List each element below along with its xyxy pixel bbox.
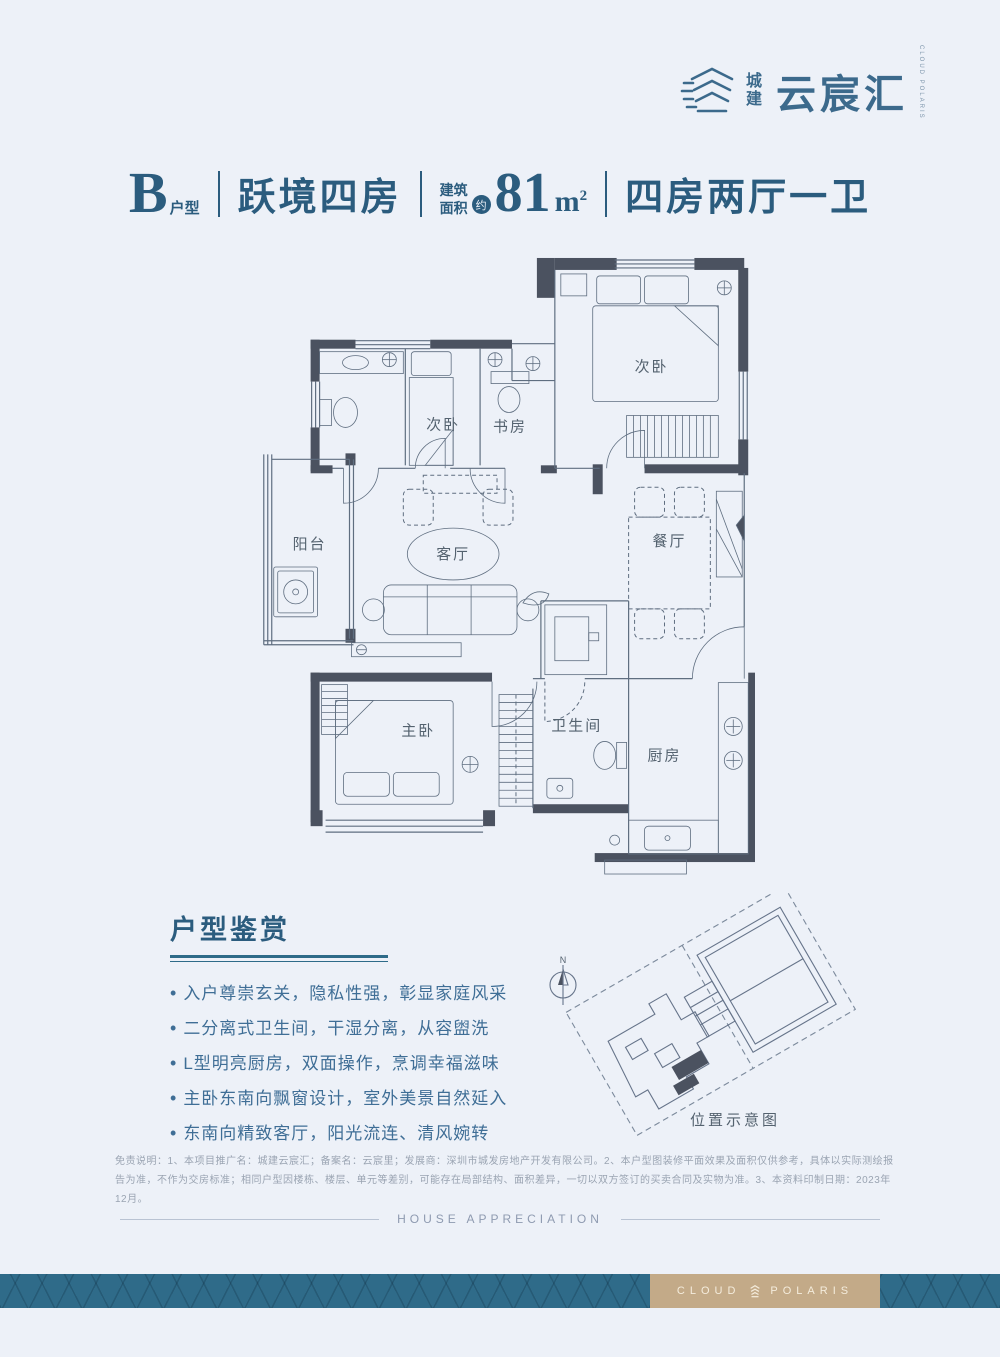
- furniture-living: [351, 475, 548, 656]
- room-label-study: 书房: [493, 418, 527, 435]
- appreciation-heading: 户型鉴赏: [170, 908, 590, 947]
- appreciation-item: 二分离式卫生间，干湿分离，从容盥洗: [170, 1011, 590, 1046]
- furniture-master: [322, 685, 479, 805]
- floorplan-doors: [344, 430, 745, 726]
- room-label-bedroom-small: 次卧: [426, 416, 460, 433]
- brand-logo: 城 建 云宸汇 CLOUD POLARIS: [678, 62, 924, 120]
- title-separator: [605, 171, 607, 217]
- appreciation-list: 入户尊崇玄关，隐私性强，彰显家庭风采 二分离式卫生间，干湿分离，从容盥洗 L型明…: [170, 976, 590, 1151]
- footer-brand-block: CLOUD POLARIS: [650, 1274, 880, 1308]
- footer-brand-left: CLOUD: [677, 1285, 741, 1297]
- area-prefix: 建筑 面积: [440, 182, 468, 217]
- appreciation-item: 入户尊崇玄关，隐私性强，彰显家庭风采: [170, 976, 590, 1011]
- area-prefix-line2: 面积: [440, 200, 468, 218]
- location-diagram: N 位置示意图: [545, 893, 965, 1141]
- room-label-bedroom-top: 次卧: [635, 359, 669, 376]
- brand-char-1: 城: [746, 73, 763, 91]
- heading-rule: [170, 955, 388, 962]
- layout-summary: 四房两厅一卫: [625, 166, 871, 221]
- unit-label: 户型: [170, 197, 200, 218]
- brand-name-large: 云宸汇: [776, 62, 908, 120]
- site-plan: [566, 893, 855, 1135]
- area-unit: m2: [555, 187, 588, 217]
- divider-line: [621, 1219, 880, 1220]
- unit-type: B 户型: [129, 167, 200, 219]
- approx-badge: 约: [472, 195, 491, 214]
- brand-building-icon: [678, 63, 736, 119]
- room-label-balcony: 阳台: [293, 536, 327, 553]
- title-separator: [420, 171, 422, 217]
- footer-divider: HOUSE APPRECIATION: [120, 1212, 880, 1226]
- brand-name-small: 城 建: [746, 73, 766, 110]
- brand-mark-icon: [748, 1284, 762, 1298]
- brochure-page: 城 建 云宸汇 CLOUD POLARIS B 户型 跃境四房 建筑 面积 约 …: [0, 0, 1000, 1357]
- layout-name: 跃境四房: [238, 166, 402, 221]
- furniture-kitchen: [605, 683, 749, 874]
- stairs: [499, 695, 533, 807]
- footer-brand-right: POLARIS: [770, 1285, 853, 1297]
- appreciation-item: 主卧东南向飘窗设计，室外美景自然延入: [170, 1081, 590, 1116]
- divider-line: [120, 1219, 379, 1220]
- room-label-kitchen: 厨房: [648, 747, 682, 764]
- unit-title: B 户型 跃境四房 建筑 面积 约 81 m2 四房两厅一卫: [0, 166, 1000, 221]
- compass-icon: N: [550, 955, 576, 1005]
- unit-letter: B: [129, 167, 168, 219]
- room-label-dining: 餐厅: [653, 533, 687, 550]
- footer-band: CLOUD POLARIS: [0, 1274, 1000, 1308]
- furniture-balcony: [274, 567, 318, 617]
- room-label-bathroom: 卫生间: [551, 717, 602, 734]
- room-label-living: 客厅: [436, 546, 470, 563]
- area-value: 81: [495, 170, 551, 218]
- area-prefix-line1: 建筑: [440, 182, 468, 200]
- room-labels: 次卧 次卧 书房 阳台 客厅 餐厅 主卧 卫生间 厨房: [293, 359, 687, 765]
- location-caption: 位置示意图: [690, 1111, 780, 1129]
- room-label-master: 主卧: [401, 722, 435, 739]
- disclaimer-text: 免责说明：1、本项目推广名：城建云宸汇；备案名：云宸里；发展商：深圳市城发房地产…: [115, 1152, 895, 1209]
- built-area: 建筑 面积 约 81 m2: [440, 170, 588, 218]
- north-label: N: [560, 955, 567, 965]
- appreciation-item: 东南向精致客厅，阳光流连、清风婉转: [170, 1116, 590, 1151]
- title-separator: [218, 171, 220, 217]
- appreciation-item: L型明亮厨房，双面操作，烹调幸福滋味: [170, 1046, 590, 1081]
- brand-char-2: 建: [746, 91, 763, 109]
- brand-name-en: CLOUD POLARIS: [918, 45, 924, 120]
- furniture-left-block: [320, 352, 540, 466]
- floor-plan: 次卧 次卧 书房 阳台 客厅 餐厅 主卧 卫生间 厨房: [255, 250, 755, 878]
- appreciation-section: 户型鉴赏 入户尊崇玄关，隐私性强，彰显家庭风采 二分离式卫生间，干湿分离，从容盥…: [170, 908, 590, 1151]
- furniture-bathroom: [545, 605, 627, 798]
- divider-label: HOUSE APPRECIATION: [397, 1212, 603, 1226]
- furniture-dining: [629, 487, 745, 639]
